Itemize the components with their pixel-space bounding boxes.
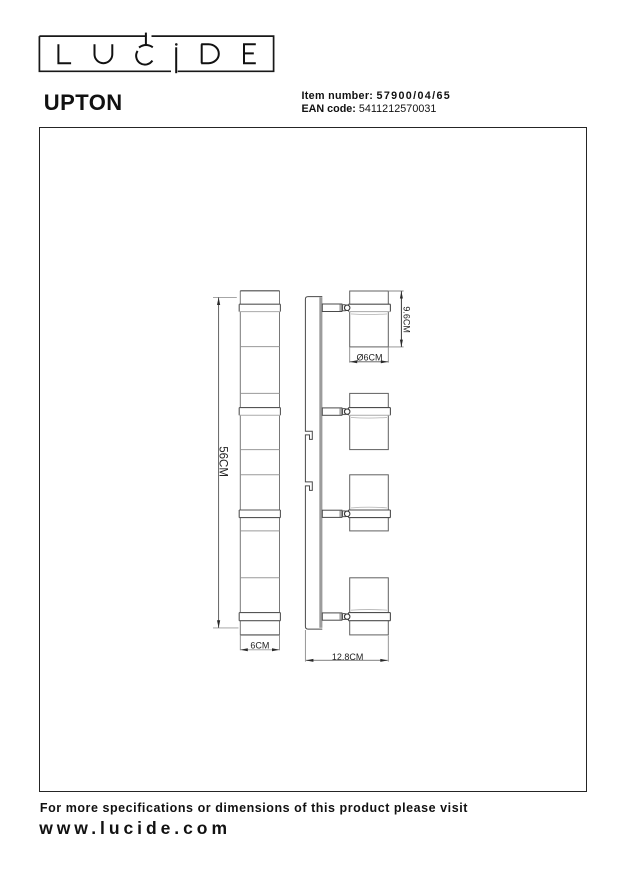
svg-text:Ø6CM: Ø6CM: [356, 353, 382, 363]
svg-text:9.6CM: 9.6CM: [401, 306, 411, 333]
svg-text:6CM: 6CM: [250, 641, 269, 651]
svg-text:56CM: 56CM: [217, 446, 229, 477]
svg-text:12.8CM: 12.8CM: [332, 652, 364, 662]
